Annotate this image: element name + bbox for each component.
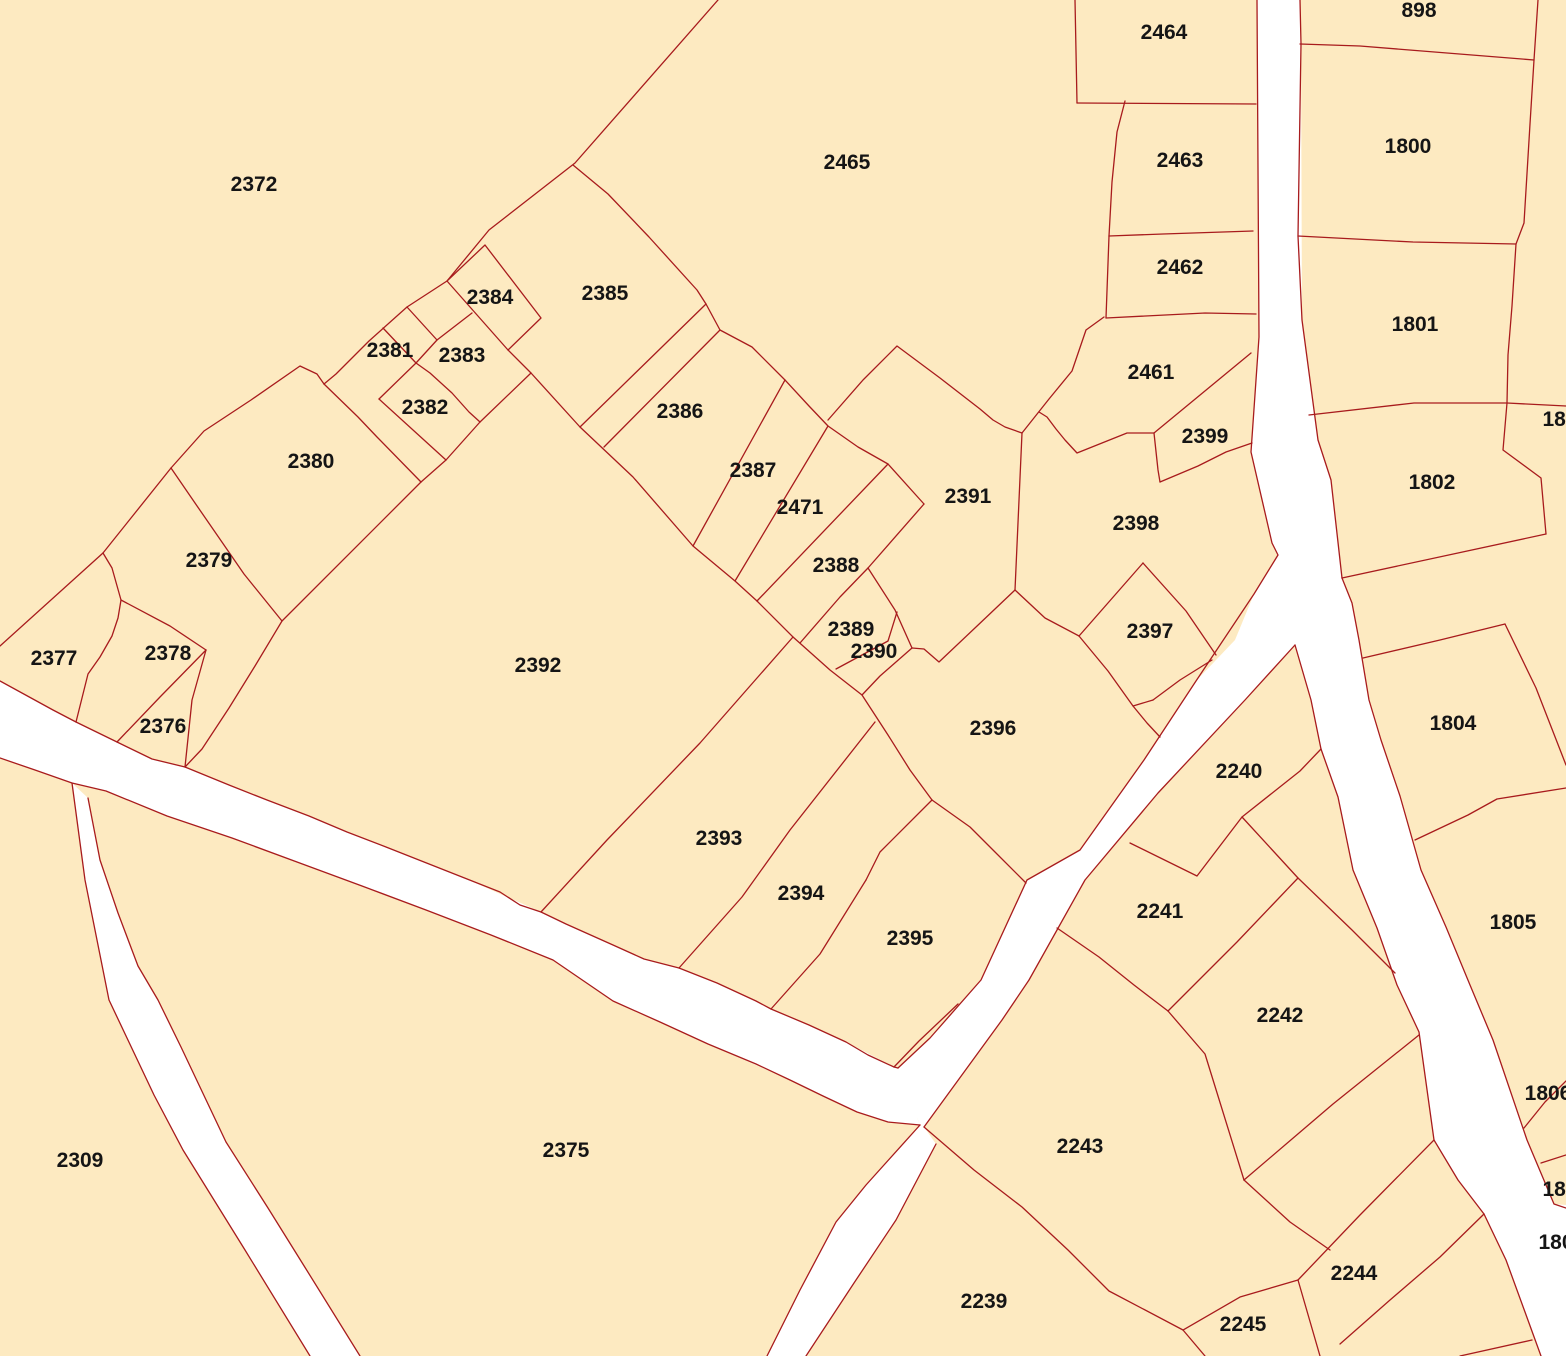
svg-text:2471: 2471	[777, 496, 824, 519]
svg-text:180: 180	[1542, 1178, 1566, 1201]
svg-text:2465: 2465	[824, 151, 871, 174]
svg-text:1805: 1805	[1490, 911, 1537, 934]
svg-text:2383: 2383	[439, 344, 486, 367]
svg-text:2384: 2384	[467, 286, 514, 309]
svg-text:898: 898	[1401, 0, 1436, 22]
svg-text:2380: 2380	[288, 450, 335, 473]
svg-text:2464: 2464	[1141, 21, 1188, 44]
svg-text:2242: 2242	[1257, 1004, 1304, 1027]
svg-text:2385: 2385	[582, 282, 629, 305]
svg-text:2394: 2394	[778, 882, 825, 905]
svg-text:1800: 1800	[1385, 135, 1432, 158]
svg-text:2387: 2387	[730, 459, 777, 482]
svg-text:2396: 2396	[970, 717, 1017, 740]
svg-text:2379: 2379	[186, 549, 233, 572]
svg-text:2393: 2393	[696, 827, 743, 850]
svg-text:2463: 2463	[1157, 149, 1204, 172]
svg-text:2390: 2390	[851, 640, 898, 663]
svg-text:2391: 2391	[945, 485, 992, 508]
svg-text:1802: 1802	[1409, 471, 1456, 494]
svg-text:2241: 2241	[1137, 900, 1184, 923]
svg-text:180: 180	[1542, 408, 1566, 431]
svg-text:180: 180	[1538, 1231, 1566, 1254]
svg-text:2389: 2389	[828, 618, 875, 641]
svg-text:2381: 2381	[367, 339, 414, 362]
svg-text:2375: 2375	[543, 1139, 590, 1162]
svg-text:2397: 2397	[1127, 620, 1174, 643]
svg-text:2372: 2372	[231, 173, 278, 196]
svg-text:2462: 2462	[1157, 256, 1204, 279]
svg-text:2399: 2399	[1182, 425, 1229, 448]
svg-text:2244: 2244	[1331, 1262, 1378, 1285]
svg-text:2376: 2376	[140, 715, 187, 738]
svg-text:1804: 1804	[1430, 712, 1477, 735]
svg-text:2386: 2386	[657, 400, 704, 423]
svg-text:2239: 2239	[961, 1290, 1008, 1313]
svg-text:1806: 1806	[1525, 1082, 1566, 1105]
svg-text:2388: 2388	[813, 554, 860, 577]
svg-text:2395: 2395	[887, 927, 934, 950]
svg-text:2245: 2245	[1220, 1313, 1267, 1336]
svg-text:1801: 1801	[1392, 313, 1439, 336]
svg-text:2377: 2377	[31, 647, 78, 670]
svg-text:2309: 2309	[57, 1149, 104, 1172]
svg-text:2392: 2392	[515, 654, 562, 677]
svg-text:2378: 2378	[145, 642, 192, 665]
svg-text:2382: 2382	[402, 396, 449, 419]
svg-text:2461: 2461	[1128, 361, 1175, 384]
svg-text:2243: 2243	[1057, 1135, 1104, 1158]
svg-text:2398: 2398	[1113, 512, 1160, 535]
svg-text:2240: 2240	[1216, 760, 1263, 783]
